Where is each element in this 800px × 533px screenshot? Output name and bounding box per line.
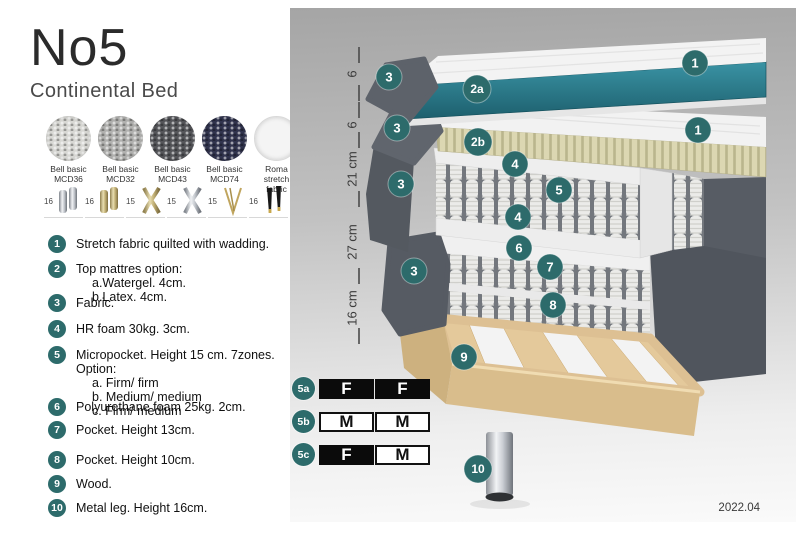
fabric-name: Bell basic — [206, 164, 242, 174]
fabric-swatch: Bell basicMCD36 — [46, 116, 91, 194]
leg-height-label: 15 — [208, 197, 217, 206]
callout-badge: 3 — [388, 171, 414, 197]
fabric-swatch-circle-icon — [202, 116, 247, 161]
callout-badge: 4 — [502, 151, 528, 177]
callout-badge: 4 — [505, 204, 531, 230]
black-gold-tip-leg-icon — [259, 184, 288, 216]
fabric-swatch-circle-icon — [98, 116, 143, 161]
dimension-label: 6 — [345, 70, 360, 77]
fabric-swatch: Bell basicMCD43 — [150, 116, 195, 194]
fabric-name: Bell basic — [154, 164, 190, 174]
fabric-swatches: Bell basicMCD36 Bell basicMCD32 Bell bas… — [46, 116, 299, 194]
callout-badge: 6 — [506, 235, 532, 261]
callout-badge: 8 — [540, 292, 566, 318]
feature-text: Wood. — [76, 475, 112, 491]
dimension-label: 16 cm — [345, 290, 360, 325]
callout-label: 6 — [515, 241, 522, 256]
callout-label: 8 — [549, 298, 556, 313]
feature-number-badge: 1 — [48, 235, 66, 253]
leg-height-label: 16 — [44, 197, 53, 206]
callout-badge: 7 — [537, 254, 563, 280]
feature-item: 3 Fabric. — [48, 294, 114, 312]
callout-badge: 5 — [546, 177, 572, 203]
callout-badge: 2a — [463, 75, 491, 103]
cylinder-silver-leg-icon — [54, 184, 83, 216]
callout-badge: 10 — [464, 455, 492, 483]
feature-item: 1 Stretch fabric quilted with wadding. — [48, 235, 269, 253]
feature-text: Pocket. Height 10cm. — [76, 451, 195, 467]
leg-height-label: 16 — [85, 197, 94, 206]
feature-text: Micropocket. Height 15 cm. 7zones. Optio… — [76, 348, 275, 376]
feature-text: Stretch fabric quilted with wadding. — [76, 235, 269, 251]
dimension-label: 21 cm — [345, 151, 360, 186]
version-label: 2022.04 — [718, 502, 760, 514]
callout-badge: 3 — [384, 115, 410, 141]
cylinder-brass-leg-icon — [95, 184, 124, 216]
page-subtitle: Continental Bed — [30, 80, 290, 103]
feature-item: 4 HR foam 30kg. 3cm. — [48, 320, 190, 338]
feature-number-badge: 7 — [48, 421, 66, 439]
callout-label: 7 — [546, 260, 553, 275]
fabric-name: Bell basic — [50, 164, 86, 174]
leg-height-label: 15 — [167, 197, 176, 206]
fabric-swatch: Bell basicMCD74 — [202, 116, 247, 194]
feature-subitem: a. Firm/ firm — [92, 376, 159, 390]
fabric-name: Bell basic — [102, 164, 138, 174]
leg-option: 15 — [167, 184, 206, 218]
callout-label: 3 — [410, 264, 417, 279]
dimension-labels: 6 6 21 cm 27 cm 16 cm — [345, 70, 360, 325]
fabric-code: MCD36 — [54, 174, 83, 184]
leg-option: 15 — [208, 184, 247, 218]
callout-label: 2b — [471, 135, 485, 149]
top-mattress — [368, 38, 766, 126]
fabric-name: Roma — [265, 164, 288, 174]
callout-label: 2a — [470, 82, 484, 96]
fabric-swatch: Bell basicMCD32 — [98, 116, 143, 194]
fabric-code: MCD43 — [158, 174, 187, 184]
feature-text: Metal leg. Height 16cm. — [76, 499, 207, 515]
feature-number-badge: 10 — [48, 499, 66, 517]
feature-number-badge: 3 — [48, 294, 66, 312]
dimension-label: 6 — [345, 121, 360, 128]
fabric-code: MCD74 — [210, 174, 239, 184]
leg-height-label: 16 — [249, 197, 258, 206]
infographic-page: No5 Continental Bed Bell basicMCD36 Bell… — [0, 0, 800, 533]
callout-badge: 9 — [451, 344, 477, 370]
callout-badge: 3 — [376, 64, 402, 90]
callout-badge: 2b — [464, 128, 492, 156]
feature-number-badge: 6 — [48, 398, 66, 416]
feature-item: 6 Polyurethane foam 25kg. 2cm. — [48, 398, 246, 416]
bed-diagram: 6 6 21 cm 27 cm 16 cm — [290, 8, 796, 522]
wood-frame-left — [400, 324, 452, 404]
diagram-panel: 6 6 21 cm 27 cm 16 cm — [290, 8, 796, 522]
mid-fabric-right — [704, 177, 766, 258]
callout-label: 10 — [471, 462, 485, 476]
callout-label: 3 — [397, 177, 404, 192]
leg-option: 16 — [85, 184, 124, 218]
feature-text: HR foam 30kg. 3cm. — [76, 320, 190, 336]
leg-options: 16 16 15 15 15 — [44, 184, 288, 218]
lower-box — [384, 234, 766, 509]
feature-subitem: a.Watergel. 4cm. — [92, 276, 186, 290]
feature-number-badge: 2 — [48, 260, 66, 278]
page-title: No5 — [30, 22, 290, 74]
hairpin-leg-icon — [218, 184, 247, 216]
feature-text: Polyurethane foam 25kg. 2cm. — [76, 398, 246, 414]
feature-item: 10 Metal leg. Height 16cm. — [48, 499, 207, 517]
callout-label: 1 — [691, 56, 698, 71]
callout-label: 3 — [385, 70, 392, 85]
callout-label: 5 — [555, 183, 562, 198]
cross-silver-leg-icon — [177, 184, 206, 216]
callout-label: 3 — [393, 121, 400, 136]
feature-number-badge: 9 — [48, 475, 66, 493]
feature-text: Pocket. Height 13cm. — [76, 421, 195, 437]
bed-leg-front-foot — [486, 493, 514, 502]
leg-height-label: 15 — [126, 197, 135, 206]
fabric-code: MCD32 — [106, 174, 135, 184]
callout-label: 1 — [694, 123, 701, 138]
callout-label: 4 — [514, 210, 522, 225]
callout-badge: 1 — [685, 117, 711, 143]
feature-item: 7 Pocket. Height 13cm. — [48, 421, 195, 439]
callout-badge: 3 — [401, 258, 427, 284]
mid-springs-receding — [672, 173, 704, 250]
feature-number-badge: 5 — [48, 346, 66, 364]
mid-corner-post — [640, 168, 672, 258]
feature-number-badge: 8 — [48, 451, 66, 469]
callout-badge: 1 — [682, 50, 708, 76]
dimension-label: 27 cm — [345, 224, 360, 259]
feature-item: 9 Wood. — [48, 475, 112, 493]
feature-text: Top mattres option: — [76, 262, 182, 276]
fabric-swatch-circle-icon — [46, 116, 91, 161]
leg-option: 16 — [44, 184, 83, 218]
leg-option: 15 — [126, 184, 165, 218]
left-column: No5 Continental Bed — [30, 22, 290, 103]
feature-item: 8 Pocket. Height 10cm. — [48, 451, 195, 469]
cross-gold-leg-icon — [136, 184, 165, 216]
callout-label: 9 — [460, 350, 467, 365]
fabric-swatch-circle-icon — [150, 116, 195, 161]
leg-option: 16 — [249, 184, 288, 218]
feature-text: Fabric. — [76, 294, 114, 310]
feature-number-badge: 4 — [48, 320, 66, 338]
callout-label: 4 — [511, 157, 519, 172]
